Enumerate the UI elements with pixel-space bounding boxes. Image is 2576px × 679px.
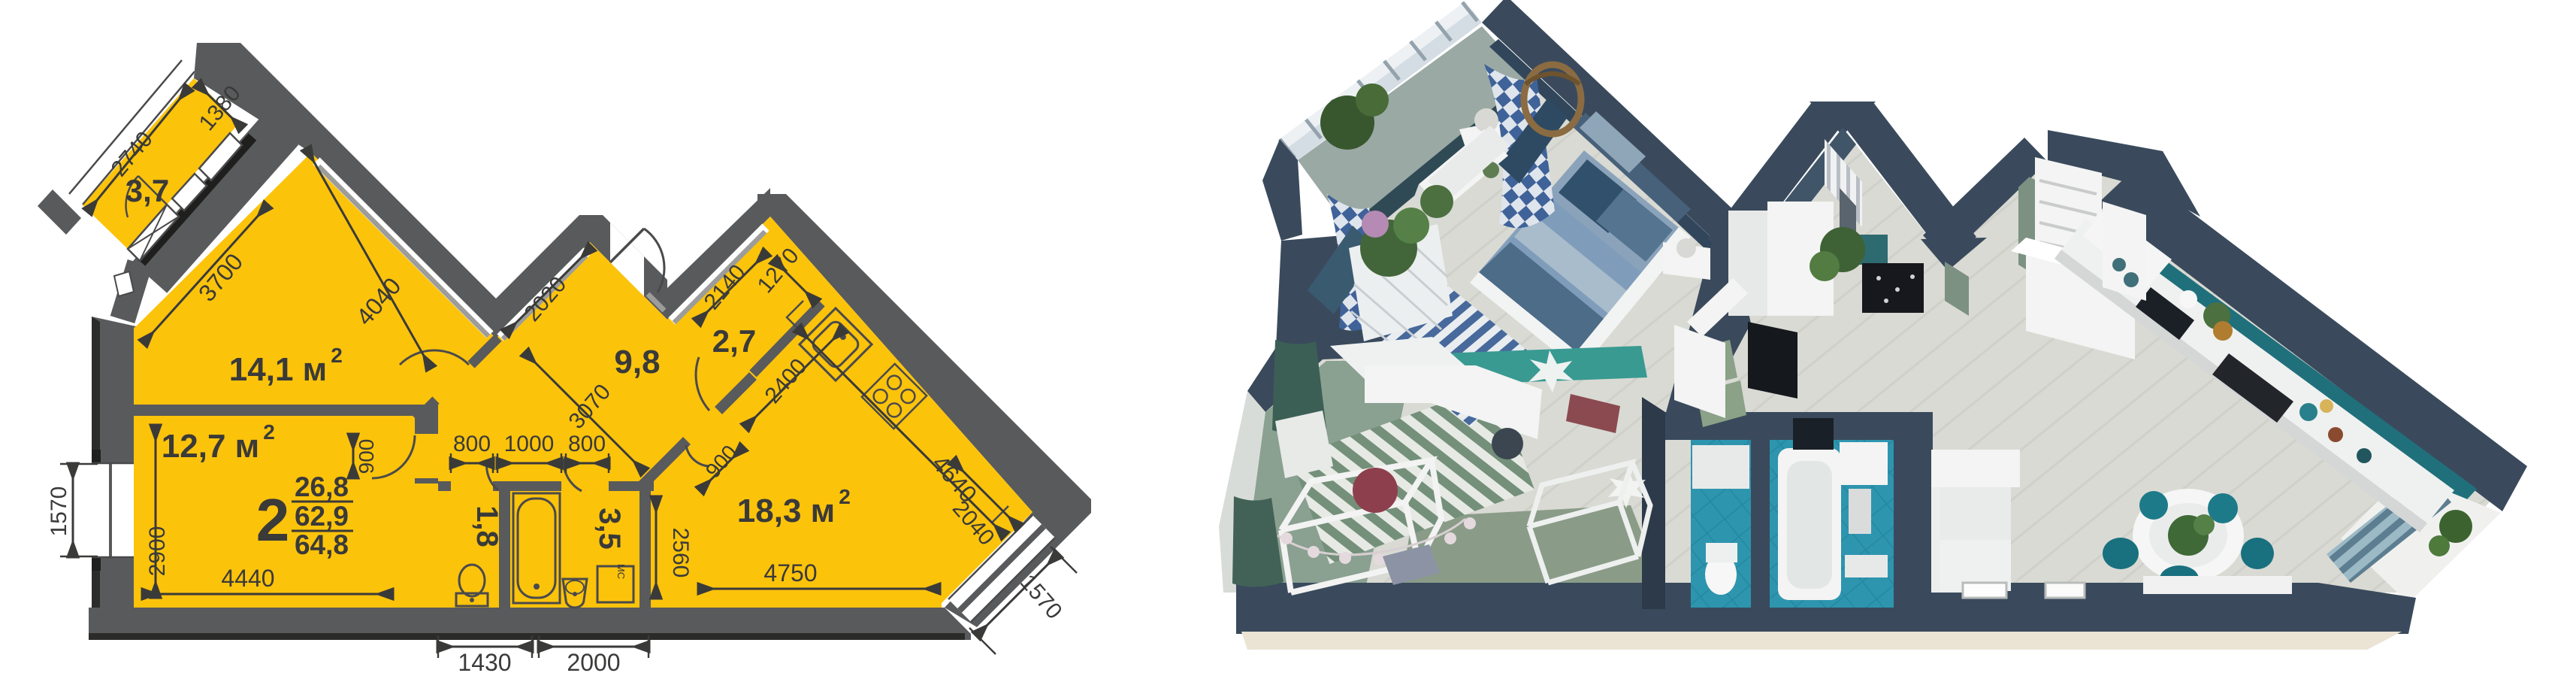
svg-text:800: 800 (568, 432, 606, 456)
svg-text:2560: 2560 (668, 528, 693, 578)
svg-text:1,8: 1,8 (470, 505, 503, 547)
svg-text:26,8: 26,8 (295, 471, 349, 502)
svg-text:2,7: 2,7 (712, 323, 756, 359)
svg-text:2: 2 (256, 487, 290, 553)
svg-text:3,7: 3,7 (125, 173, 169, 208)
svg-text:2: 2 (263, 420, 275, 444)
svg-text:2: 2 (331, 344, 343, 367)
svg-text:2900: 2900 (145, 526, 170, 577)
svg-text:64,8: 64,8 (295, 529, 349, 560)
svg-text:1000: 1000 (504, 432, 555, 456)
svg-text:800: 800 (453, 432, 491, 456)
svg-text:18,3 м: 18,3 м (737, 493, 835, 529)
svg-text:2000: 2000 (567, 649, 620, 676)
svg-text:14,1 м: 14,1 м (229, 351, 327, 388)
svg-text:3,5: 3,5 (593, 508, 626, 550)
svg-text:2: 2 (839, 485, 851, 508)
svg-text:9,8: 9,8 (614, 344, 660, 380)
svg-text:4750: 4750 (763, 559, 817, 587)
svg-text:4440: 4440 (221, 565, 274, 592)
svg-text:МС: МС (615, 564, 627, 579)
svg-text:62,9: 62,9 (295, 501, 349, 532)
svg-text:900: 900 (355, 439, 378, 474)
svg-text:1570: 1570 (47, 487, 71, 537)
svg-text:1430: 1430 (458, 649, 511, 676)
svg-text:12,7 м: 12,7 м (162, 428, 259, 465)
